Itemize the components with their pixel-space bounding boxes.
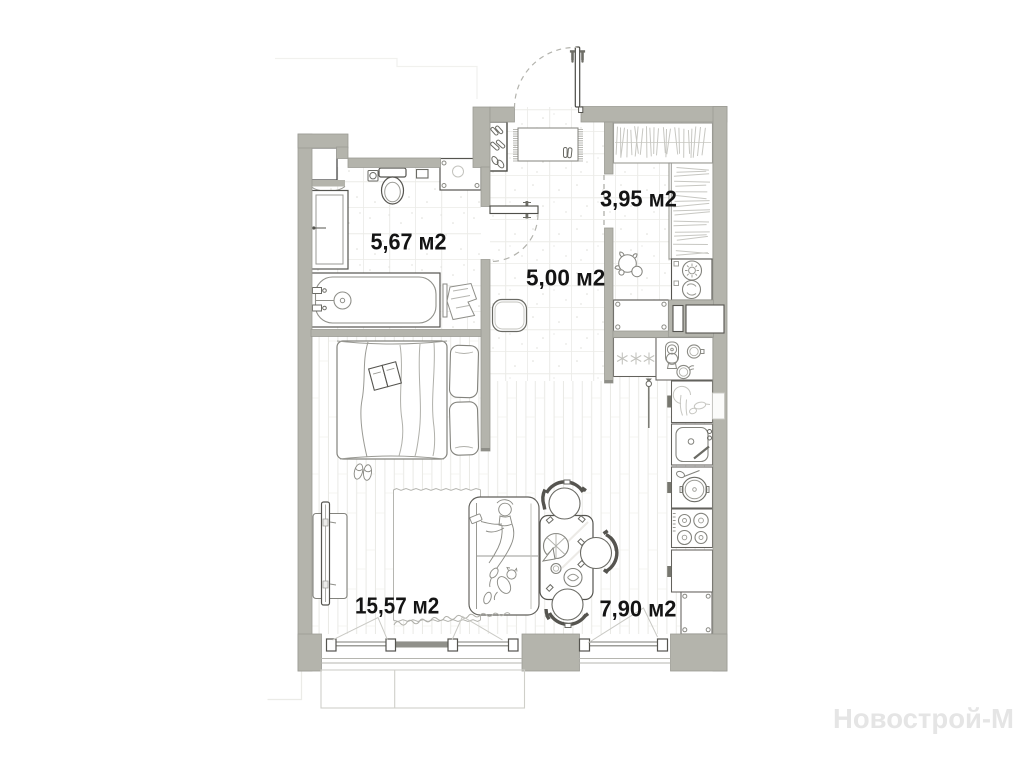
svg-text:15,57 м2: 15,57 м2 <box>355 592 439 619</box>
svg-text:7,90 м2: 7,90 м2 <box>600 595 677 622</box>
svg-text:3,95 м2: 3,95 м2 <box>600 185 677 212</box>
svg-text:5,67 м2: 5,67 м2 <box>371 229 447 255</box>
svg-text:Новострой-М: Новострой-М <box>833 703 1014 734</box>
svg-text:5,00 м2: 5,00 м2 <box>526 264 605 291</box>
